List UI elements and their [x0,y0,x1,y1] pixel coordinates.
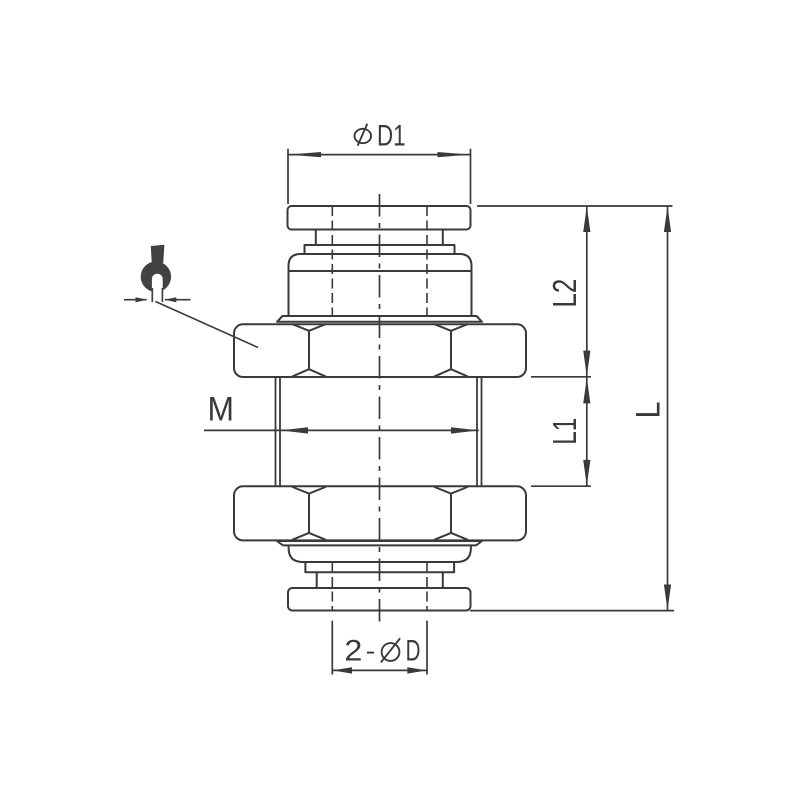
svg-text:2: 2 [344,634,362,667]
svg-text:L: L [630,402,668,419]
svg-text:D: D [406,634,421,667]
svg-text:L1: L1 [546,418,583,445]
svg-text:L2: L2 [546,279,583,308]
svg-text:D1: D1 [377,119,406,152]
svg-text:M: M [208,391,235,429]
